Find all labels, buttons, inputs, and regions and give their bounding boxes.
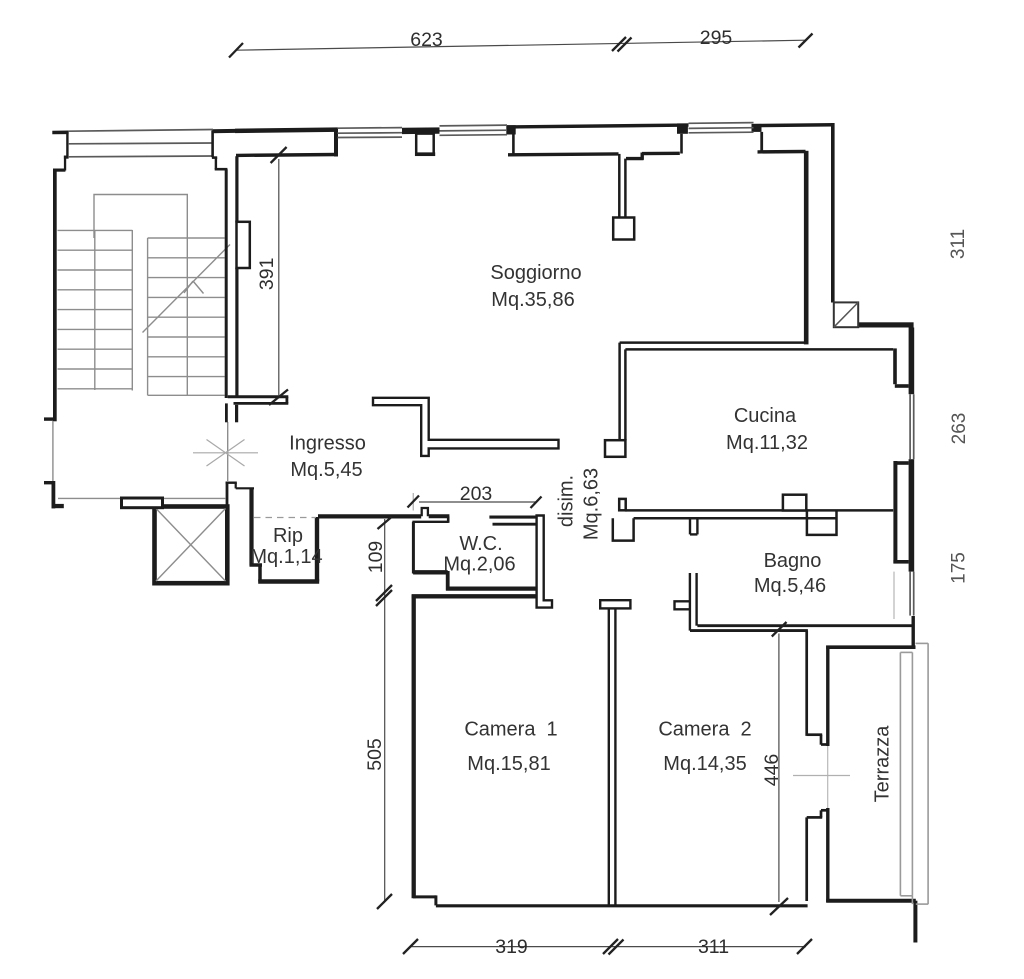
svg-text:175: 175 (949, 552, 970, 584)
svg-text:203: 203 (460, 483, 493, 505)
svg-text:505: 505 (364, 738, 386, 771)
svg-text:Mq.14,35: Mq.14,35 (663, 753, 746, 775)
svg-text:Cucina: Cucina (734, 405, 797, 427)
svg-text:Bagno: Bagno (764, 550, 822, 572)
svg-text:Mq.1,14: Mq.1,14 (250, 546, 322, 568)
svg-text:295: 295 (700, 27, 733, 49)
svg-text:Mq.11,32: Mq.11,32 (726, 432, 808, 454)
svg-text:Camera 2: Camera 2 (658, 719, 751, 741)
svg-text:Mq.5,45: Mq.5,45 (290, 459, 362, 481)
svg-text:Mq.6,63: Mq.6,63 (581, 468, 603, 540)
svg-text:Mq.35,86: Mq.35,86 (491, 289, 574, 311)
svg-text:Mq.5,46: Mq.5,46 (754, 575, 826, 597)
svg-text:446: 446 (761, 754, 783, 787)
svg-text:311: 311 (948, 229, 969, 259)
svg-text:319: 319 (495, 936, 528, 958)
svg-text:Rip: Rip (273, 525, 303, 547)
svg-text:disim.: disim. (556, 475, 578, 527)
svg-text:391: 391 (256, 258, 278, 291)
svg-text:109: 109 (365, 541, 387, 574)
svg-text:Mq.2,06: Mq.2,06 (443, 554, 515, 576)
svg-text:Soggiorno: Soggiorno (490, 262, 581, 284)
svg-text:Ingresso: Ingresso (289, 433, 366, 455)
svg-text:Terrazza: Terrazza (872, 725, 894, 803)
svg-text:311: 311 (698, 936, 729, 958)
svg-text:623: 623 (410, 29, 443, 51)
svg-text:W.C.: W.C. (459, 533, 502, 555)
svg-text:263: 263 (949, 413, 970, 445)
svg-text:Mq.15,81: Mq.15,81 (467, 753, 550, 775)
svg-text:Camera 1: Camera 1 (464, 719, 557, 741)
